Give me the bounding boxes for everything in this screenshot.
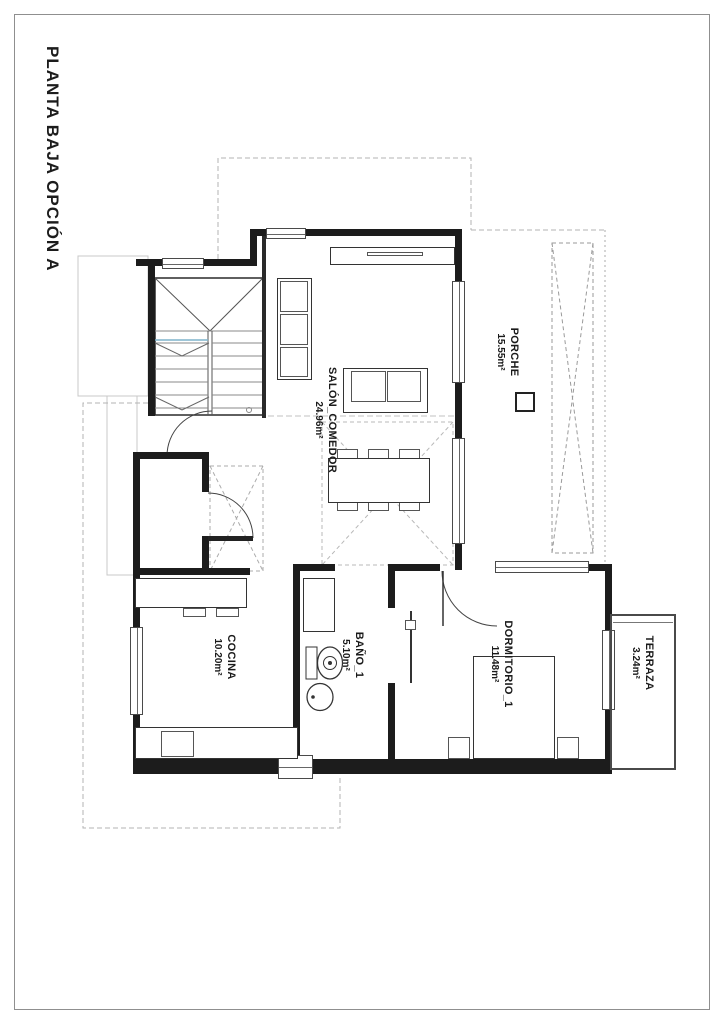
room-name: SALÓN_COMEDOR: [324, 350, 338, 490]
side-porch-outline: [78, 256, 148, 396]
wall: [455, 542, 462, 570]
toilet-tank: [306, 647, 317, 679]
wall: [202, 459, 209, 492]
pergola-x-line: [552, 243, 593, 553]
tv-cabinet-slot: [367, 252, 423, 256]
wall: [293, 564, 335, 571]
bidet: [307, 684, 333, 711]
sofa-cushion: [280, 281, 308, 312]
sofa-cushion: [280, 347, 308, 377]
window-bedroom-top: [495, 561, 589, 573]
kitchen-sink: [161, 731, 194, 757]
label-salon: SALÓN_COMEDOR 24.96m²: [310, 350, 340, 490]
dining-table: [328, 458, 430, 503]
sofa-cushion: [351, 371, 386, 402]
wall-partition: [262, 236, 266, 418]
wall: [148, 266, 155, 416]
room-area: 3.24m²: [629, 593, 642, 733]
room-name: BAÑO_1: [351, 585, 365, 725]
wall: [388, 564, 440, 571]
wall: [455, 236, 462, 281]
sofa-cushion: [280, 314, 308, 345]
floor-plan-sheet: { "page": { "title": "PLANTA BAJA OPCIÓN…: [0, 0, 724, 1024]
label-dormitorio: DORMITORIO_1 11.48m²: [486, 594, 516, 734]
wall: [455, 381, 462, 438]
wall: [302, 229, 462, 236]
wall: [133, 452, 209, 459]
room-name: DORMITORIO_1: [500, 594, 514, 734]
room-name: TERRAZA: [641, 593, 655, 733]
label-bano: BAÑO_1 5.10m²: [337, 585, 367, 725]
sliding-door-porch: [452, 438, 465, 544]
kitchen-stool: [183, 608, 206, 617]
door-hinge-plate: [405, 620, 416, 630]
bathroom-vanity: [303, 578, 335, 632]
label-cocina: COCINA 10.20m²: [209, 587, 239, 727]
bidet-tap: [311, 695, 315, 699]
staircase: [155, 278, 263, 415]
toilet-drain: [328, 661, 332, 665]
room-name: COCINA: [223, 587, 237, 727]
room-area: 24.96m²: [312, 350, 325, 490]
window-salon-top: [266, 228, 306, 239]
nightstand: [448, 737, 470, 759]
wall: [202, 259, 250, 266]
sofa-cushion: [387, 371, 421, 402]
wall: [388, 571, 395, 608]
door-arc-stair: [167, 411, 212, 456]
door-leaf-entrance: [208, 536, 253, 541]
room-area: 5.10m²: [339, 585, 352, 725]
room-area: 15.55m²: [494, 282, 507, 422]
wall: [133, 459, 140, 575]
window-salon-east-upper: [452, 281, 465, 383]
linework-layer: [0, 0, 724, 1024]
wall: [133, 568, 250, 575]
kitchen-counter-south: [135, 727, 298, 759]
tv-cabinet: [330, 247, 455, 265]
room-area: 11.48m²: [488, 594, 501, 734]
window-kitchen-west: [130, 627, 143, 715]
nightstand: [557, 737, 579, 759]
wall: [388, 683, 395, 762]
window-stair: [162, 258, 204, 269]
wall: [136, 259, 162, 266]
wall: [133, 759, 612, 774]
room-area: 10.20m²: [211, 587, 224, 727]
room-name: PORCHE: [506, 282, 520, 422]
label-terraza: TERRAZA 3.24m²: [627, 593, 657, 733]
label-porche: PORCHE 15.55m²: [492, 282, 522, 422]
stair-direction-chevron: [155, 343, 209, 356]
